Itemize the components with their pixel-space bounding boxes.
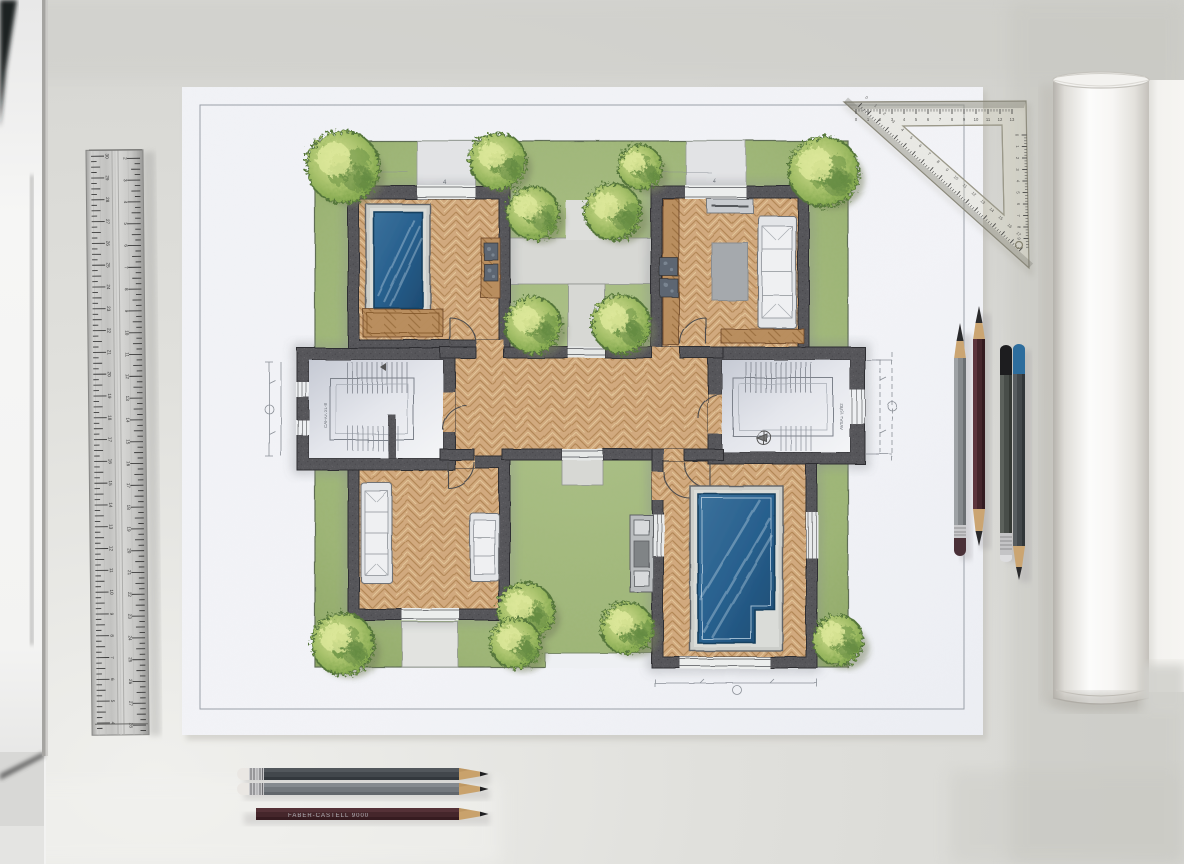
svg-text:18: 18 [126, 505, 131, 511]
svg-text:12: 12 [109, 546, 114, 552]
svg-text:22: 22 [127, 592, 132, 598]
svg-text:25: 25 [106, 263, 111, 269]
svg-text:30: 30 [104, 154, 109, 160]
svg-text:18: 18 [107, 415, 112, 421]
svg-text:24: 24 [128, 635, 133, 641]
svg-text:11: 11 [109, 568, 114, 573]
svg-text:10: 10 [974, 117, 979, 122]
svg-text:11: 11 [125, 352, 130, 357]
svg-text:28: 28 [105, 197, 110, 203]
svg-text:19: 19 [107, 393, 112, 399]
svg-text:27: 27 [105, 219, 110, 225]
svg-text:25: 25 [128, 657, 133, 663]
svg-text:24: 24 [106, 284, 111, 290]
svg-text:FABER-CASTELL 9000: FABER-CASTELL 9000 [288, 813, 369, 819]
svg-text:15: 15 [108, 480, 113, 486]
svg-text:16: 16 [126, 461, 131, 467]
svg-text:16: 16 [108, 459, 113, 465]
svg-text:20: 20 [107, 371, 112, 377]
svg-text:12: 12 [998, 117, 1003, 122]
svg-text:21: 21 [127, 570, 132, 576]
svg-text:11: 11 [986, 117, 991, 122]
svg-text:15: 15 [125, 439, 130, 445]
svg-text:23: 23 [127, 614, 132, 620]
svg-text:26: 26 [128, 679, 133, 685]
svg-text:22: 22 [106, 328, 111, 334]
svg-text:21: 21 [107, 350, 112, 356]
svg-text:17: 17 [107, 437, 112, 443]
svg-text:13: 13 [1010, 117, 1015, 122]
svg-text:20: 20 [127, 548, 132, 554]
svg-text:17: 17 [126, 483, 131, 489]
svg-text:10: 10 [124, 330, 129, 336]
svg-text:26: 26 [105, 241, 110, 247]
svg-text:CAFKA 21-8: CAFKA 21-8 [323, 402, 328, 428]
svg-text:13: 13 [125, 396, 130, 402]
svg-text:14: 14 [108, 502, 113, 508]
svg-text:AVSA2 15/82: AVSA2 15/82 [839, 403, 844, 430]
svg-text:27: 27 [128, 701, 133, 707]
svg-text:23: 23 [106, 306, 111, 312]
svg-text:19: 19 [126, 526, 131, 532]
svg-text:29: 29 [105, 175, 110, 181]
svg-text:10: 10 [109, 589, 114, 595]
svg-text:14: 14 [125, 417, 130, 423]
svg-text:12: 12 [125, 374, 130, 380]
svg-text:13: 13 [108, 524, 113, 530]
